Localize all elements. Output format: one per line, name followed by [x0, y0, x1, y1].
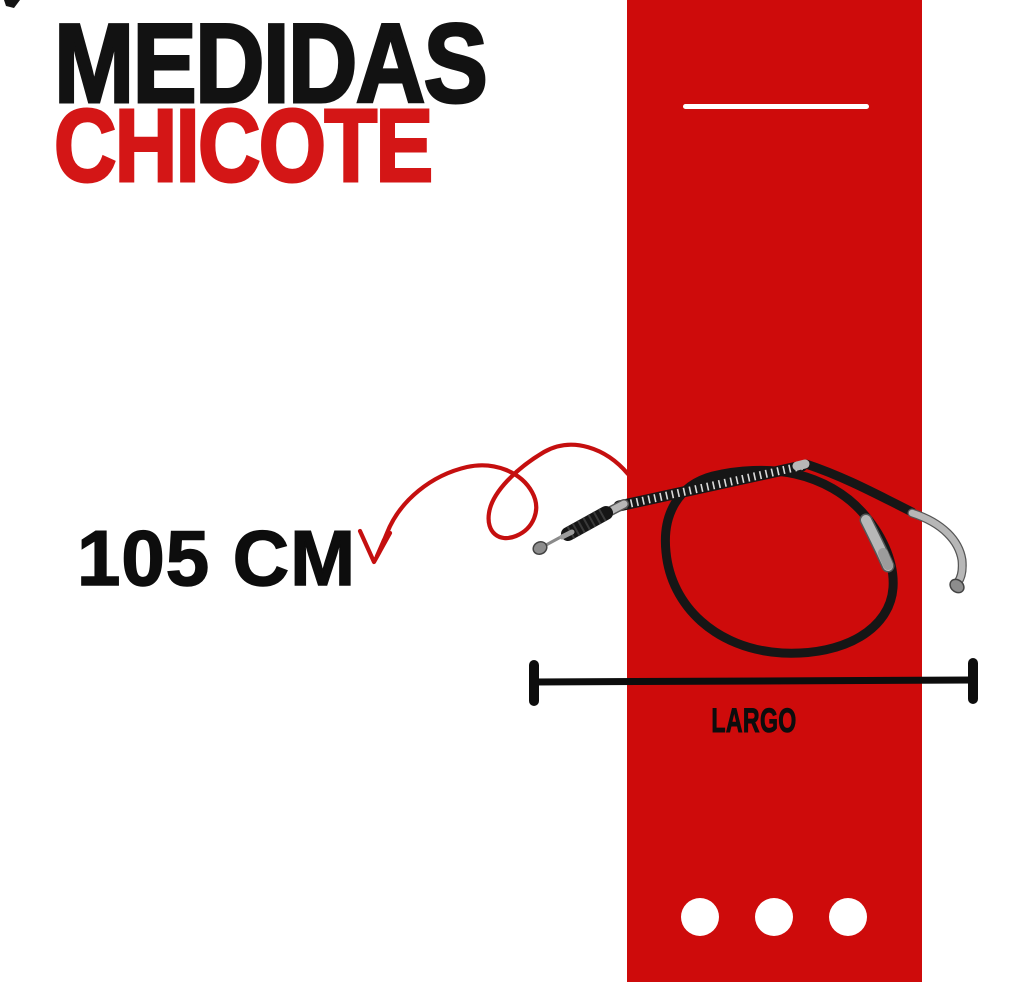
- cable-elbow-tube: [912, 513, 962, 582]
- dot-icon: [681, 898, 719, 936]
- infographic-canvas: MEDIDAS CHICOTE 105 CM LARGO: [0, 0, 1024, 982]
- cable-barrel-nipple-left: [531, 539, 549, 556]
- dimension-line-main: [534, 680, 973, 682]
- dot-icon: [829, 898, 867, 936]
- measurement-value: 105 CM: [77, 519, 356, 597]
- curved-arrow-icon: [360, 445, 628, 562]
- pagination-dots: [681, 898, 867, 936]
- length-dimension-line: [534, 663, 973, 701]
- title-block: MEDIDAS CHICOTE: [0, 0, 640, 210]
- title-line-2: CHICOTE: [54, 94, 432, 197]
- dimension-label: LARGO: [711, 704, 796, 738]
- cable-loop: [665, 470, 893, 653]
- cable-coil-section: [619, 466, 802, 506]
- cable-coil-end-tip: [797, 464, 805, 466]
- dot-icon: [755, 898, 793, 936]
- arrow-shaft: [380, 445, 628, 550]
- clutch-cable-photo: [531, 464, 967, 653]
- cable-adjuster-lock-ring: [883, 553, 888, 565]
